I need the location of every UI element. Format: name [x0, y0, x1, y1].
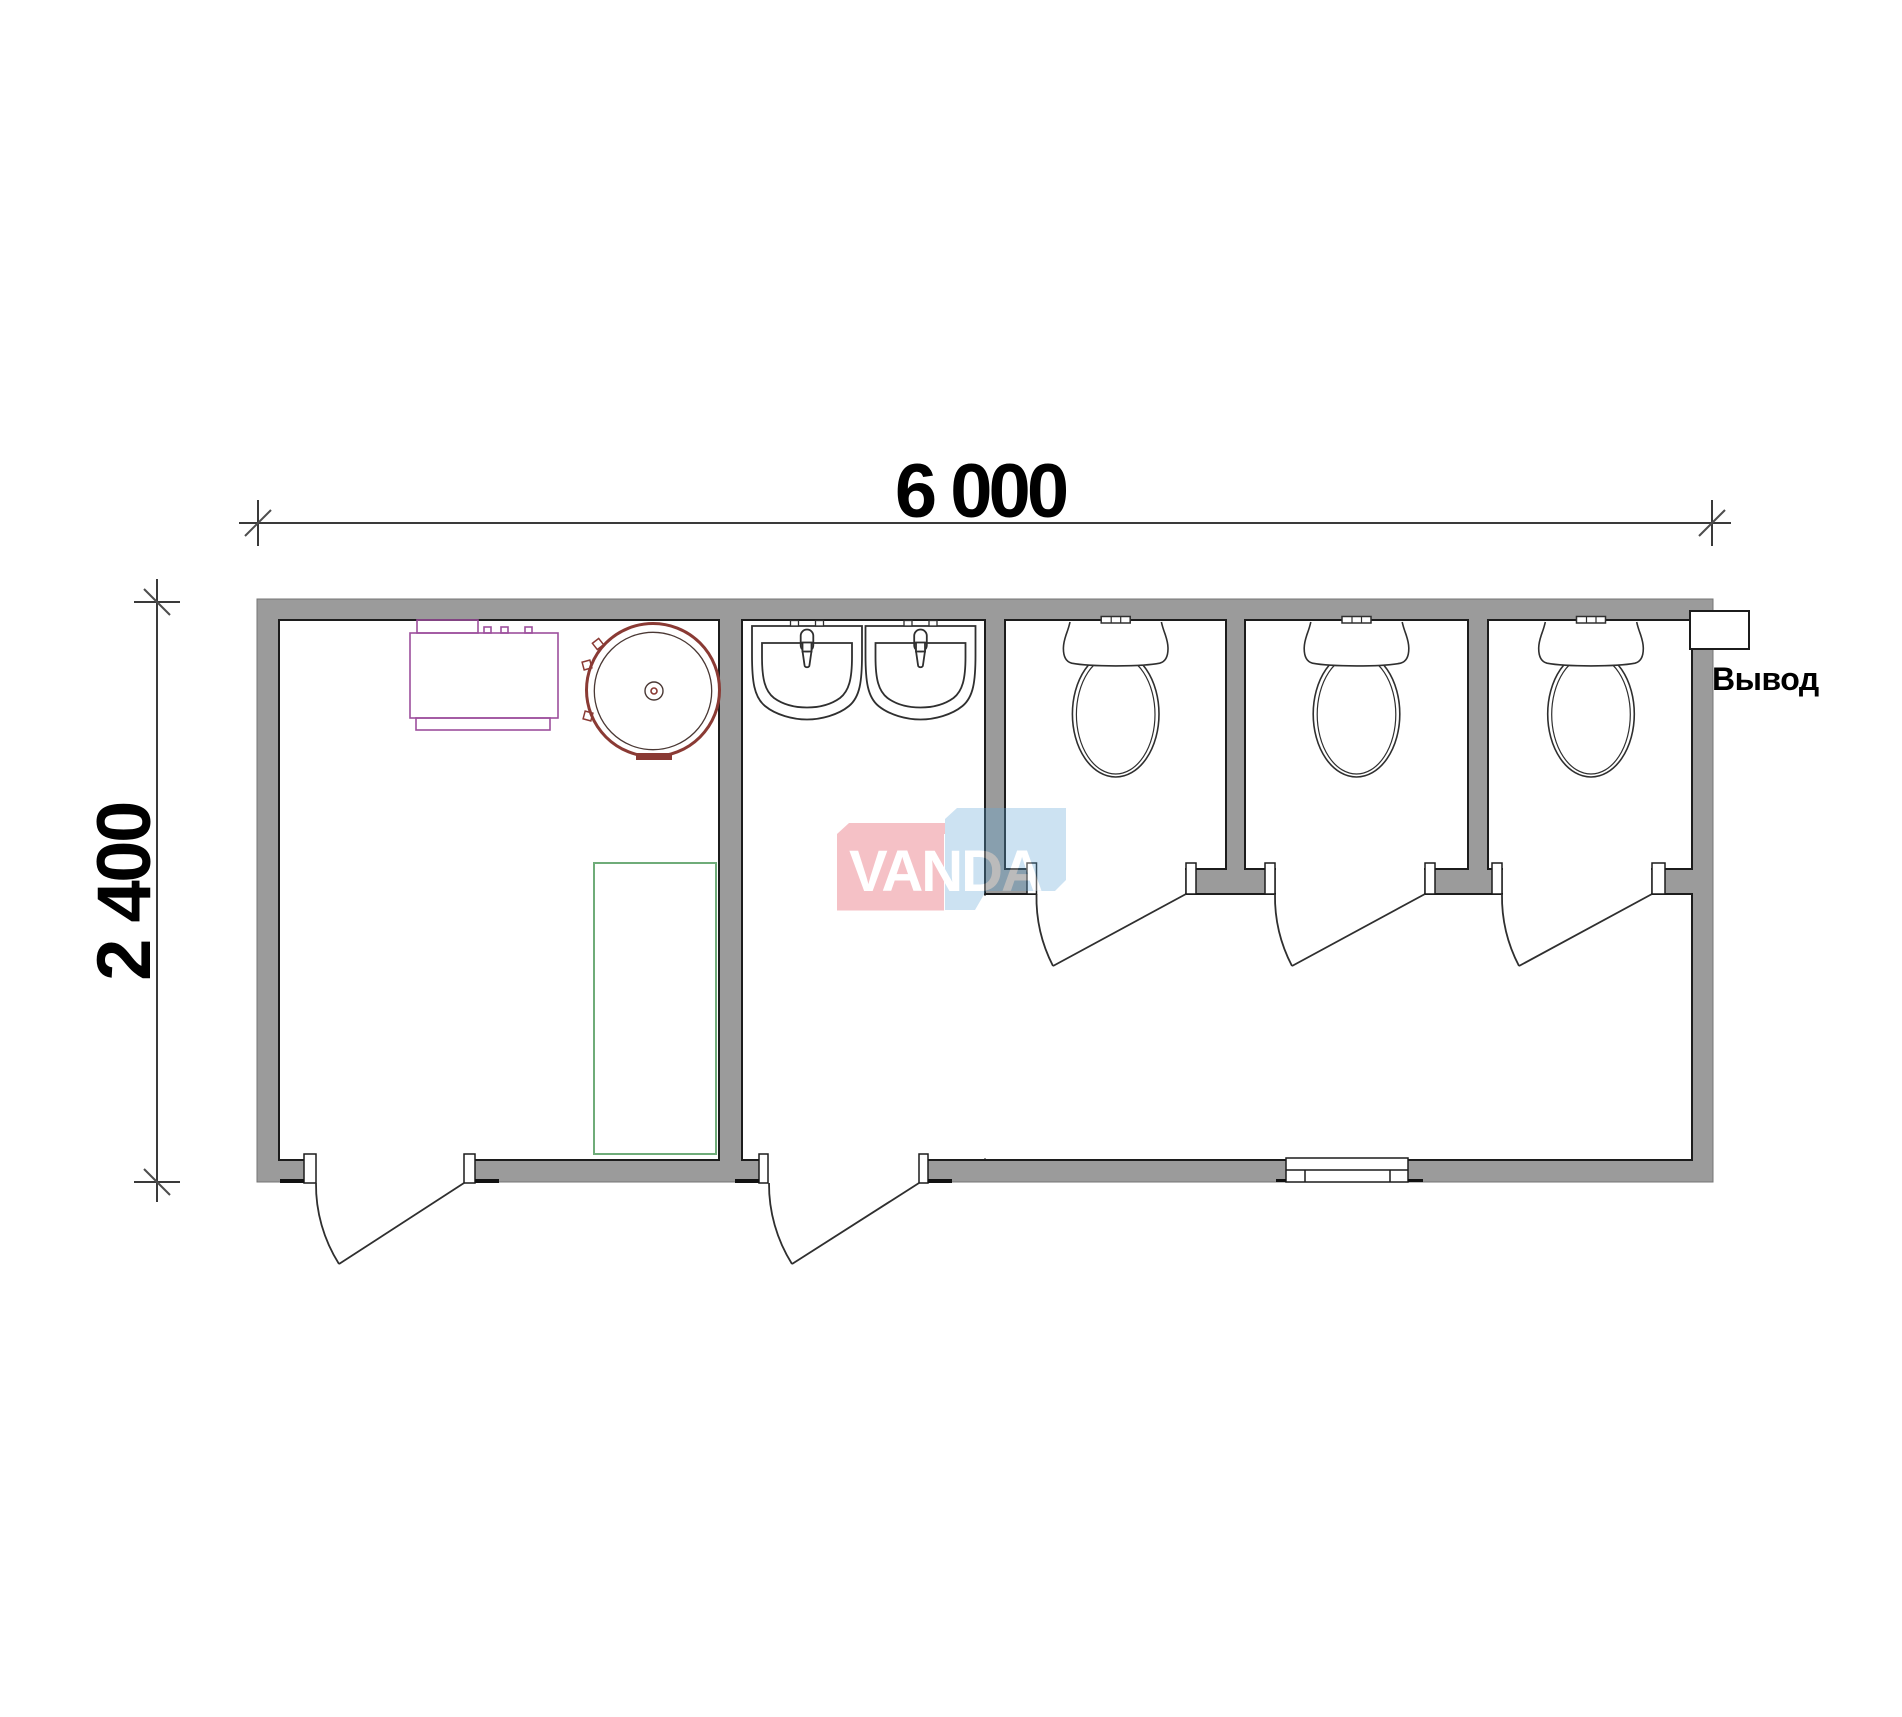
svg-text:Вывод: Вывод: [1712, 661, 1819, 697]
svg-text:2 400: 2 400: [82, 803, 167, 981]
svg-text:VANDA: VANDA: [849, 839, 1042, 904]
svg-text:6 000: 6 000: [895, 449, 1067, 534]
